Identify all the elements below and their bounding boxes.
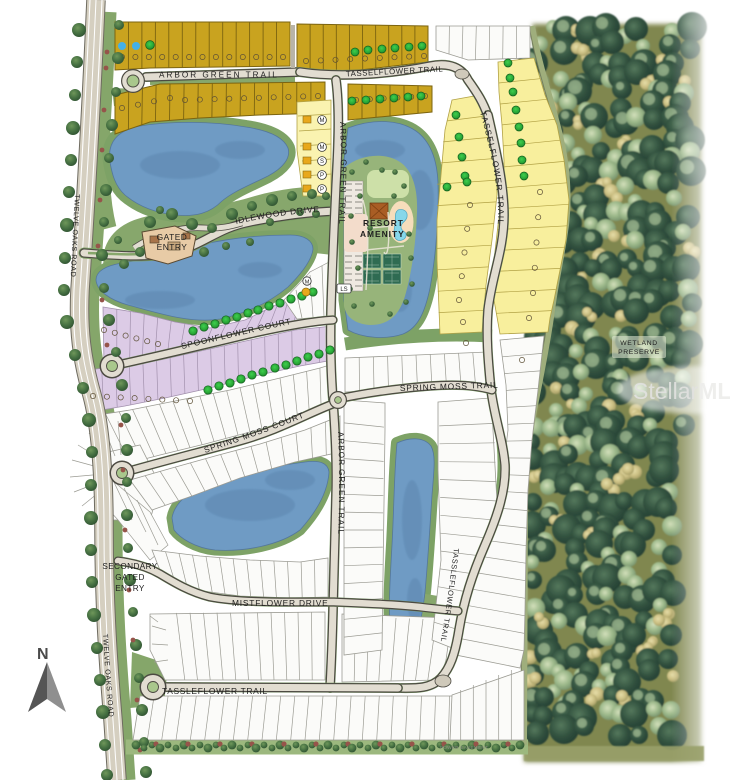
svg-text:M: M [320,145,325,151]
svg-text:RESORT: RESORT [363,218,404,228]
svg-text:PRESERVE: PRESERVE [618,349,660,356]
svg-text:WETLAND: WETLAND [620,340,657,347]
svg-text:N: N [37,646,49,663]
svg-text:TASSLEFLOWER TRAIL: TASSLEFLOWER TRAIL [162,686,268,696]
svg-text:MISTFLOWER DRIVE: MISTFLOWER DRIVE [232,598,329,608]
svg-text:AMENITY: AMENITY [360,229,405,239]
svg-text:ENTRY: ENTRY [157,242,188,252]
svg-text:StellarMLS: StellarMLS [633,378,730,404]
svg-text:ENTRY: ENTRY [115,584,145,593]
svg-text:S: S [320,159,324,165]
svg-text:P: P [320,187,324,193]
svg-text:M: M [320,118,325,124]
svg-text:GATED: GATED [157,232,188,242]
svg-text:SECONDARY: SECONDARY [102,562,157,571]
svg-text:ARBOR GREEN TRAIL: ARBOR GREEN TRAIL [159,71,279,80]
svg-text:P: P [320,173,324,179]
svg-text:M: M [305,280,310,286]
svg-text:GATED: GATED [115,573,145,582]
svg-text:POWER EASEMENT: POWER EASEMENT [440,745,488,750]
svg-text:LS: LS [340,287,347,293]
